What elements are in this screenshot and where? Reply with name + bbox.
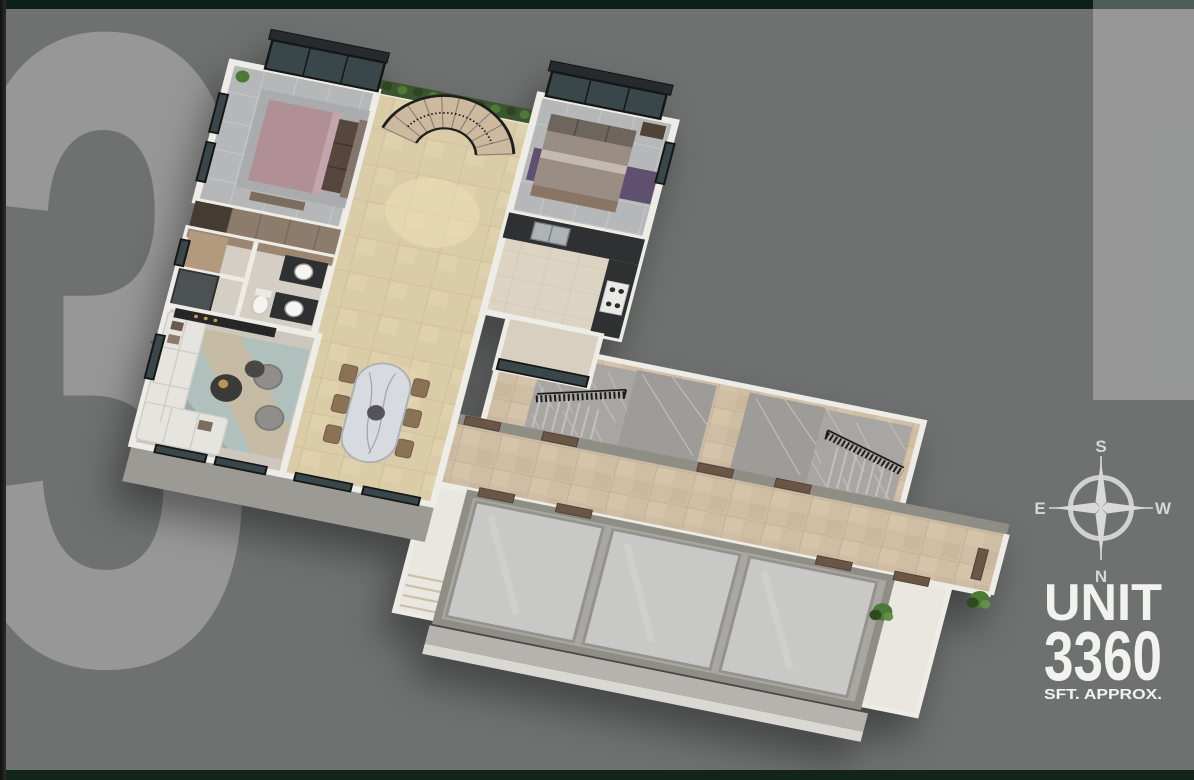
unit-badge: UNIT 3360 SFT. APPROX. xyxy=(1044,580,1176,712)
compass-label-left: E xyxy=(1034,499,1045,518)
frame-border-top xyxy=(0,0,1194,9)
lift-shaft-3 xyxy=(720,557,877,697)
unit-badge-number: 3360 xyxy=(1044,617,1162,695)
compass-label-right: W xyxy=(1155,499,1172,518)
watermark-bar xyxy=(1093,0,1194,400)
lift-shaft-2 xyxy=(583,529,740,669)
master-bedroom xyxy=(196,62,378,230)
lift-shaft-1 xyxy=(446,502,603,642)
compass-label-top: S xyxy=(1095,437,1106,456)
unit-badge-caption: SFT. APPROX. xyxy=(1044,687,1162,703)
floorplan-page: 3 xyxy=(0,0,1194,780)
frame-border-bottom xyxy=(0,770,1194,780)
frame-spine xyxy=(0,0,6,780)
floorplan-3d-render xyxy=(0,0,1194,780)
